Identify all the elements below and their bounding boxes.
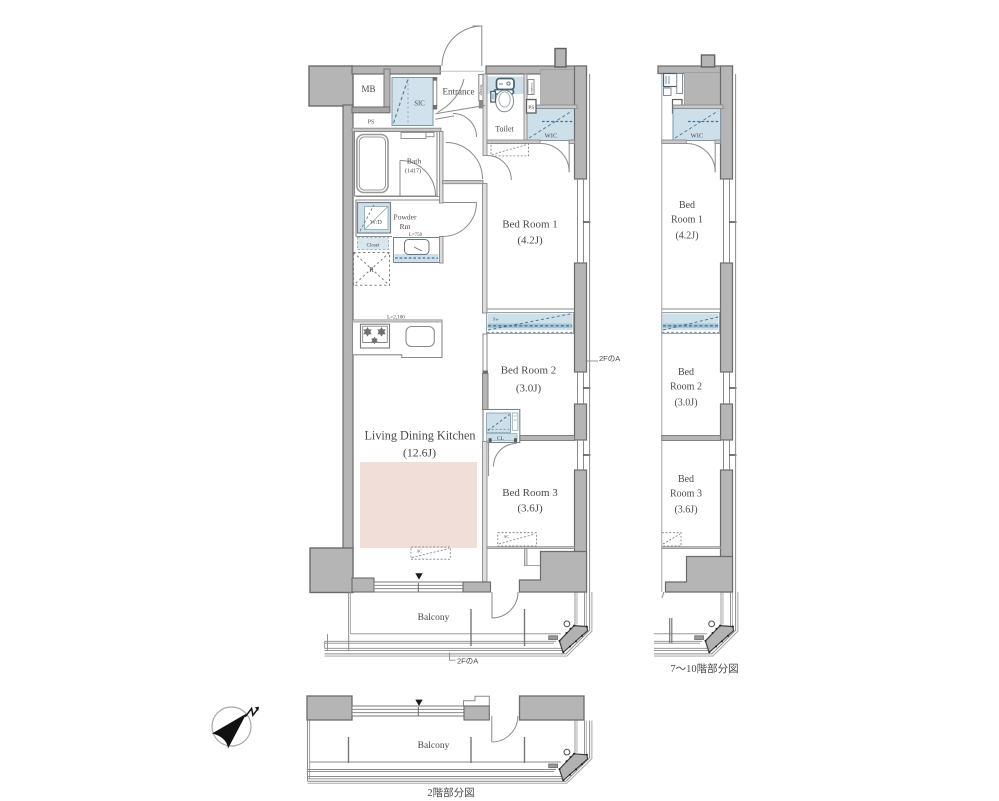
svg-text:Room 1: Room 1 xyxy=(671,215,703,226)
svg-text:(4.2J): (4.2J) xyxy=(517,235,543,247)
svg-text:Rm: Rm xyxy=(400,222,411,231)
svg-text:L=2,100: L=2,100 xyxy=(387,315,405,321)
svg-text:MB: MB xyxy=(361,84,375,94)
svg-text:Entrance: Entrance xyxy=(443,87,475,97)
svg-text:AC: AC xyxy=(417,549,423,554)
svg-text:Room 2: Room 2 xyxy=(670,382,702,393)
svg-text:Storage: Storage xyxy=(479,85,483,96)
svg-text:AC: AC xyxy=(504,534,510,539)
svg-text:Bed: Bed xyxy=(679,200,695,211)
svg-text:2FのA: 2FのA xyxy=(599,354,620,363)
svg-text:WIC: WIC xyxy=(691,133,704,140)
svg-text:Sw: Sw xyxy=(493,317,500,322)
svg-text:Living Dining Kitchen: Living Dining Kitchen xyxy=(364,429,475,443)
svg-text:Bed: Bed xyxy=(678,474,694,485)
svg-text:L=750: L=750 xyxy=(409,233,423,238)
svg-text:SIC: SIC xyxy=(414,101,425,108)
svg-text:7～10階部分図: 7～10階部分図 xyxy=(670,662,738,675)
svg-text:Powder: Powder xyxy=(394,213,417,222)
svg-text:(3.6J): (3.6J) xyxy=(674,505,697,516)
svg-text:CL: CL xyxy=(497,436,505,442)
svg-text:(12.6J): (12.6J) xyxy=(403,446,436,460)
svg-text:WIC: WIC xyxy=(545,133,558,140)
svg-text:Closet: Closet xyxy=(367,244,380,249)
svg-text:(3.0J): (3.0J) xyxy=(674,398,697,409)
svg-text:Room 3: Room 3 xyxy=(670,489,702,500)
svg-text:Bed Room 3: Bed Room 3 xyxy=(502,487,558,499)
svg-text:(1417): (1417) xyxy=(405,168,421,175)
svg-text:Bath: Bath xyxy=(407,157,421,166)
svg-text:Balcony: Balcony xyxy=(418,613,450,623)
svg-text:PS: PS xyxy=(528,105,534,111)
svg-text:Bed Room 1: Bed Room 1 xyxy=(502,219,558,231)
svg-text:Bed Room 2: Bed Room 2 xyxy=(501,365,557,377)
svg-text:R: R xyxy=(369,266,374,274)
svg-text:Toilet: Toilet xyxy=(495,125,514,134)
svg-text:(3.0J): (3.0J) xyxy=(516,383,542,395)
svg-text:2階部分図: 2階部分図 xyxy=(427,786,474,799)
svg-text:Bed: Bed xyxy=(678,367,694,378)
svg-text:2FのA: 2FのA xyxy=(457,657,478,666)
svg-text:Counter: Counter xyxy=(530,83,534,95)
svg-text:PS: PS xyxy=(368,120,374,126)
svg-text:Balcony: Balcony xyxy=(418,741,450,751)
svg-text:(3.6J): (3.6J) xyxy=(517,503,543,515)
svg-text:(4.2J): (4.2J) xyxy=(675,231,698,242)
svg-text:W/D: W/D xyxy=(370,220,382,226)
